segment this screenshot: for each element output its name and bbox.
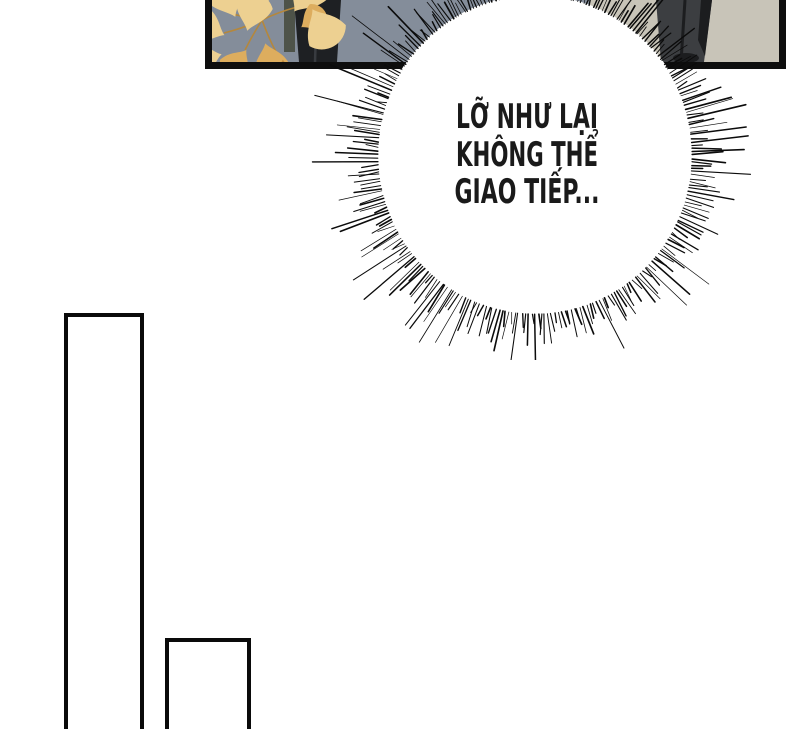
speech-bubble-text: LỠ NHƯ LẠI KHÔNG THỂ GIAO TIẾP... <box>455 96 600 212</box>
bubble-text-line-2: KHÔNG THỂ <box>456 129 598 175</box>
comic-page: LỠ NHƯ LẠI KHÔNG THỂ GIAO TIẾP... <box>0 0 800 729</box>
next-panel-rect-small <box>165 638 251 729</box>
bubble-text-line-3: GIAO TIẾP... <box>455 167 600 212</box>
top-panel-scene: LỠ NHƯ LẠI KHÔNG THỂ GIAO TIẾP... <box>0 0 800 360</box>
next-panel-rect-tall <box>64 313 144 729</box>
bubble-text-line-1: LỠ NHƯ LẠI <box>456 96 598 137</box>
